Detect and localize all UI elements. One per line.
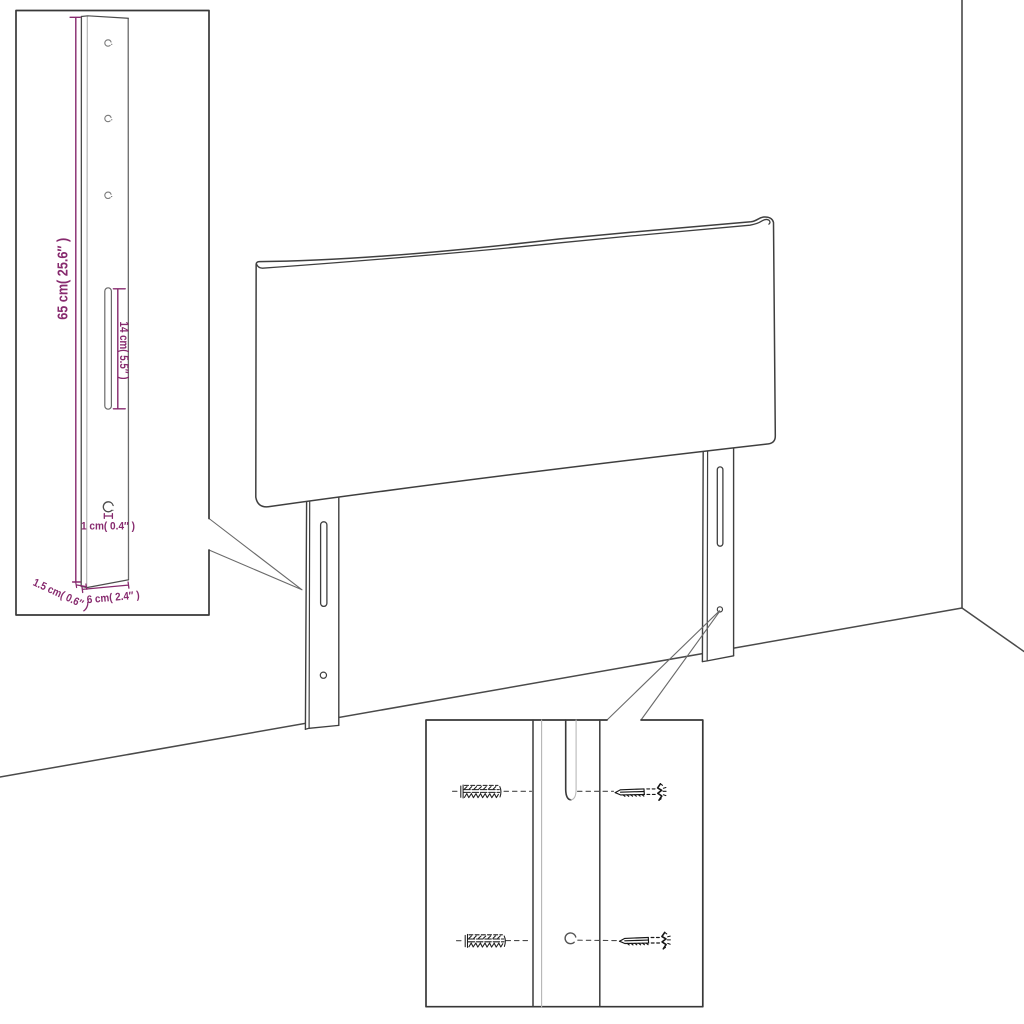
svg-text:14 cm( 5.5″ ): 14 cm( 5.5″ ): [117, 322, 131, 380]
svg-text:1 cm( 0.4″ ): 1 cm( 0.4″ ): [81, 521, 135, 533]
svg-text:65 cm( 25.6″ ): 65 cm( 25.6″ ): [55, 238, 72, 320]
